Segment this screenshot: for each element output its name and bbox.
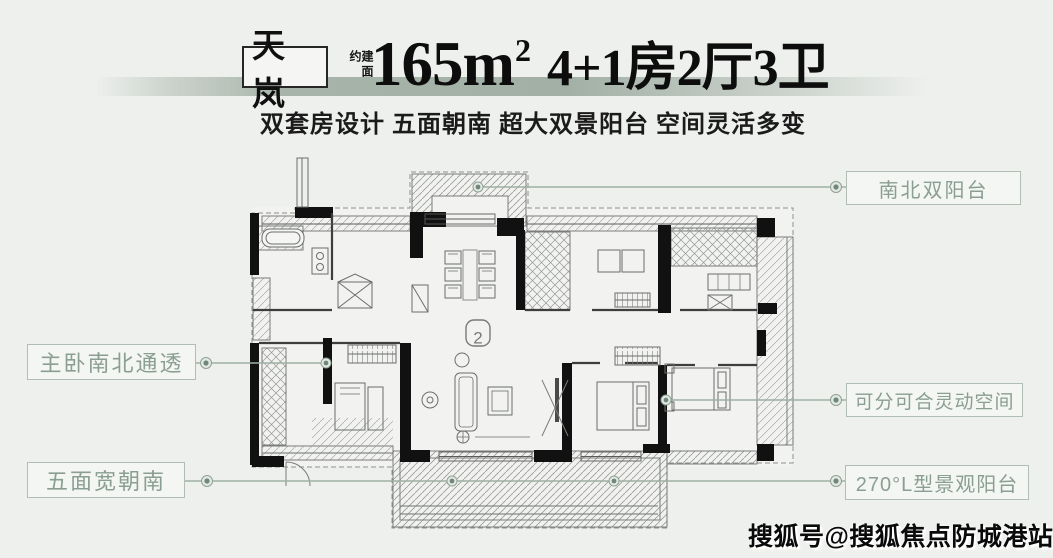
area-prefix-label: 建面约 <box>349 50 373 94</box>
project-name-badge: 天岚 <box>242 46 328 88</box>
floor-plan: 2 <box>240 150 800 535</box>
area-superscript: 2 <box>515 34 531 66</box>
callout-l-shaped-balcony: 270°L型景观阳台 <box>845 465 1029 500</box>
area-value: 165m <box>371 33 514 96</box>
callout-master-bedroom: 主卧南北通透 <box>27 344 196 380</box>
page-title: 165m24+1房2厅3卫 <box>371 33 829 96</box>
layout-spec: 4+1房2厅3卫 <box>547 43 829 95</box>
callout-north-south-balconies: 南北双阳台 <box>846 171 1021 205</box>
watermark: 搜狐号@搜狐焦点防城港站 <box>748 517 1053 553</box>
subtitle: 双套房设计 五面朝南 超大双景阳台 空间灵活多变 <box>233 104 833 139</box>
callout-flex-space: 可分可合灵动空间 <box>846 383 1023 417</box>
callout-five-bays-south: 五面宽朝南 <box>27 462 185 498</box>
unit-number: 2 <box>473 328 482 347</box>
